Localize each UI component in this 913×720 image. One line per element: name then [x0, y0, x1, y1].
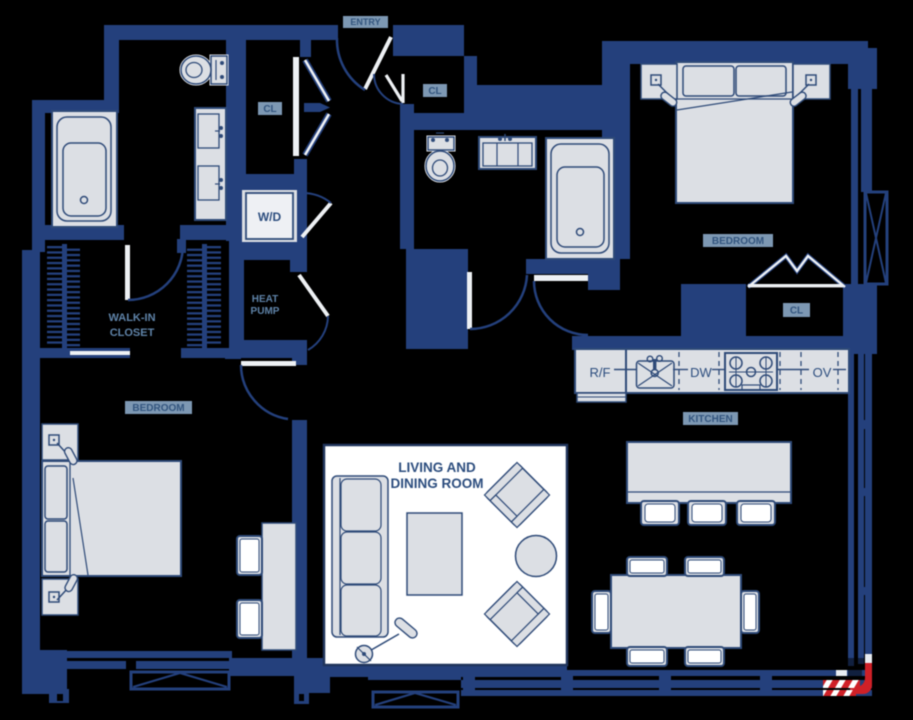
svg-text:CL: CL	[790, 306, 803, 317]
svg-text:LIVING AND: LIVING AND	[398, 460, 476, 475]
svg-text:DINING ROOM: DINING ROOM	[391, 476, 484, 491]
svg-text:WALK-IN: WALK-IN	[108, 312, 155, 324]
svg-text:PUMP: PUMP	[251, 306, 280, 317]
svg-text:HEAT: HEAT	[252, 294, 278, 305]
svg-text:BEDROOM: BEDROOM	[132, 403, 184, 414]
svg-text:CL: CL	[263, 104, 276, 115]
svg-text:CL: CL	[428, 86, 441, 97]
svg-text:OV: OV	[813, 365, 832, 380]
svg-text:KITCHEN: KITCHEN	[688, 414, 732, 425]
svg-text:W/D: W/D	[258, 210, 282, 224]
svg-text:DW: DW	[690, 365, 712, 380]
svg-text:R/F: R/F	[590, 365, 611, 380]
svg-text:ENTRY: ENTRY	[350, 17, 380, 27]
svg-text:BEDROOM: BEDROOM	[712, 236, 764, 247]
svg-text:CLOSET: CLOSET	[110, 327, 155, 339]
